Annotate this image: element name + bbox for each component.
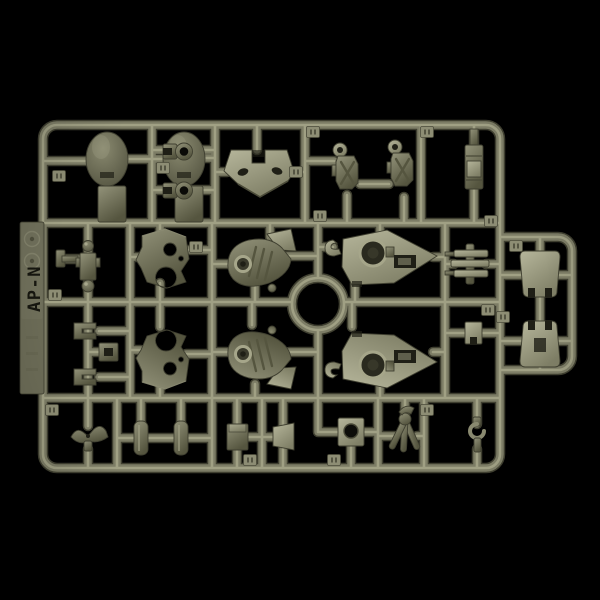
vignette-overlay — [0, 0, 600, 600]
sprue-photo: AP-N — [0, 0, 600, 600]
sprue-runner: AP-N — [0, 0, 600, 600]
